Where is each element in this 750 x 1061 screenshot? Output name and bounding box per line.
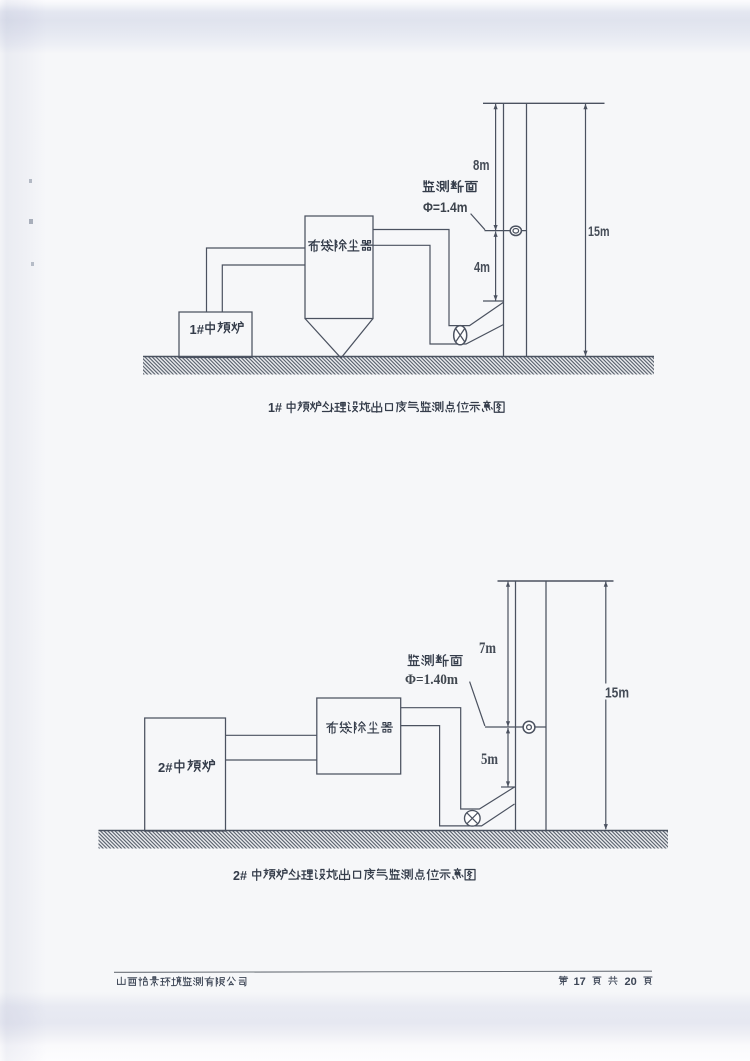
svg-text:2#: 2# (158, 760, 173, 775)
svg-text:4m: 4m (474, 259, 490, 276)
svg-text:Φ=1.40m: Φ=1.40m (405, 672, 458, 688)
svg-text:20: 20 (625, 976, 637, 988)
svg-text:15m: 15m (588, 223, 610, 239)
svg-text:1#: 1# (268, 401, 282, 415)
svg-text:17: 17 (574, 976, 586, 988)
svg-text:8m: 8m (473, 157, 490, 174)
svg-text:7m: 7m (479, 640, 497, 657)
svg-text:1#: 1# (190, 322, 205, 337)
svg-text:Φ=1.4m: Φ=1.4m (423, 200, 468, 215)
svg-text:5m: 5m (481, 751, 499, 768)
svg-text:15m: 15m (605, 684, 629, 701)
svg-text:2#: 2# (233, 869, 247, 883)
